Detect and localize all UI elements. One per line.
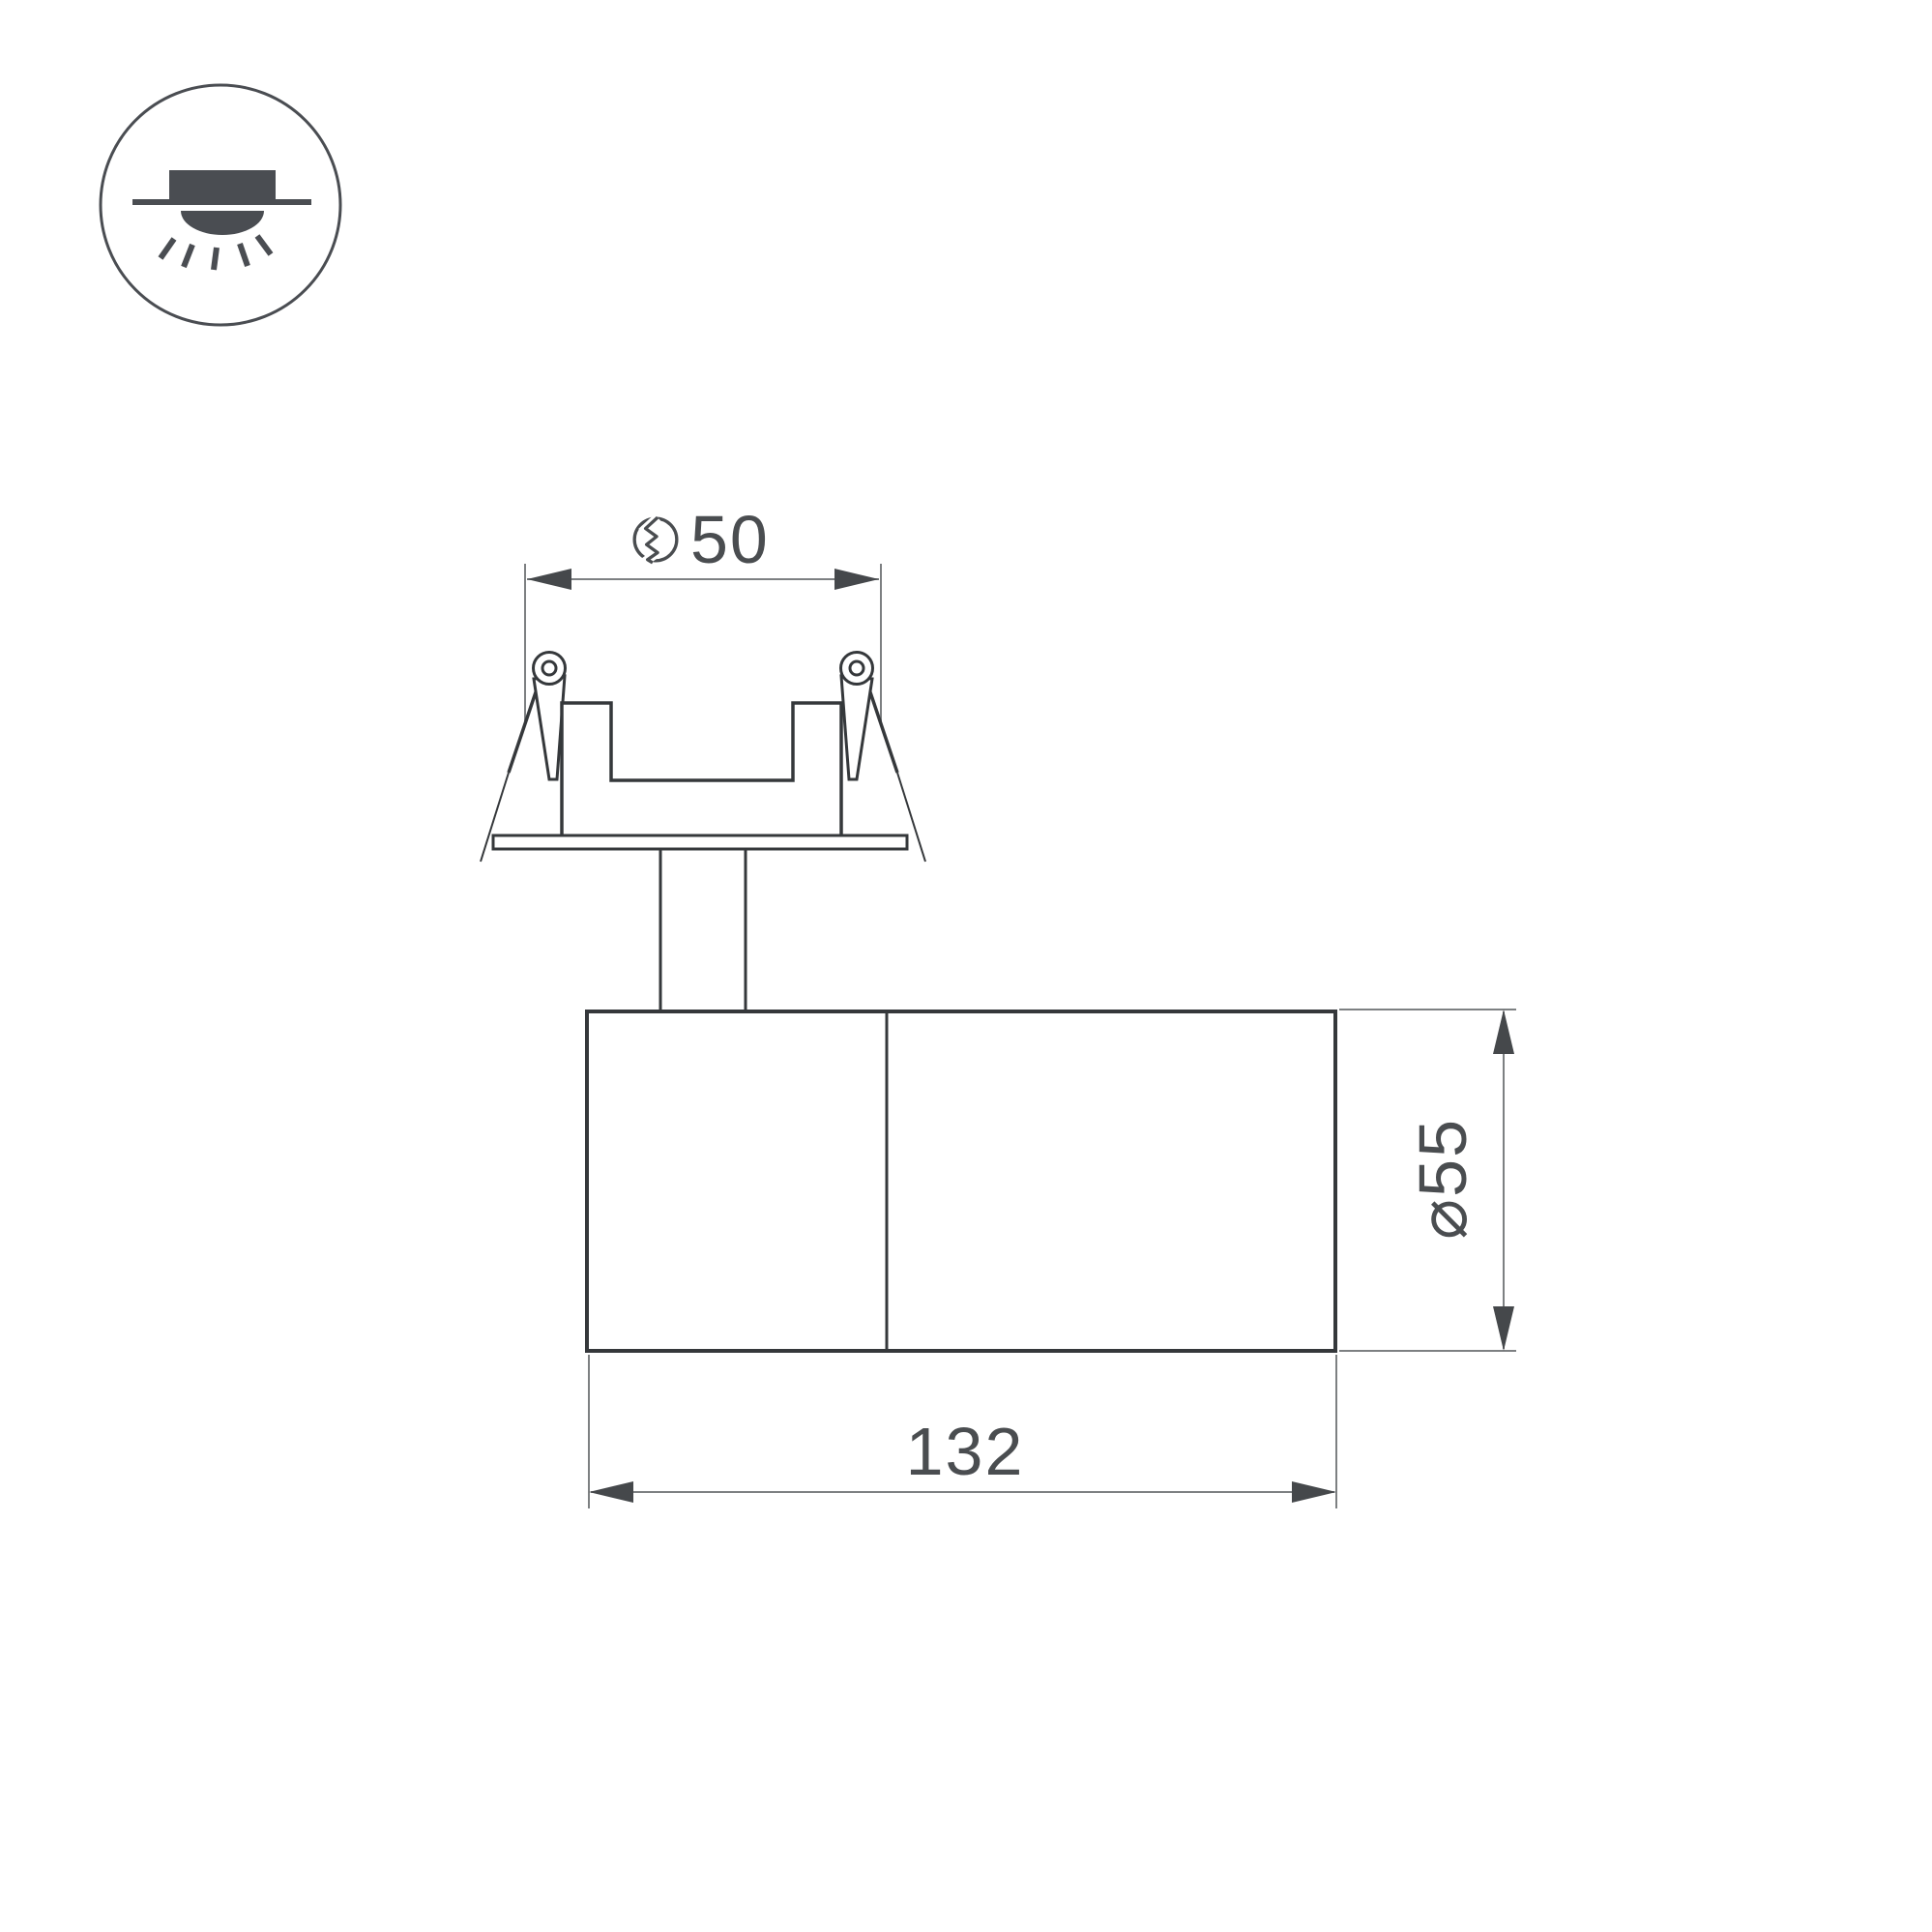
mounting-clip-right — [841, 653, 926, 863]
arrowhead-right-icon — [834, 569, 879, 590]
mounting-clip-left — [481, 653, 566, 863]
arrowhead-left-icon — [589, 1481, 633, 1503]
cutout-hole-icon — [630, 514, 681, 565]
arrowhead-down-icon — [1493, 1306, 1514, 1351]
technical-drawing-canvas: 50 ⌀55 132 — [0, 0, 1932, 1932]
dimension-cutout-50 — [525, 564, 881, 725]
mounting-flange — [493, 835, 907, 849]
stem — [660, 848, 746, 1011]
arrowhead-up-icon — [1493, 1010, 1514, 1054]
dimension-label-cutout: 50 — [630, 505, 770, 574]
dimension-value-cutout: 50 — [690, 506, 770, 573]
arrowhead-right-icon — [1292, 1481, 1336, 1503]
arrowhead-left-icon — [527, 569, 571, 590]
dimension-label-diameter: ⌀55 — [1409, 1118, 1477, 1240]
lamp-body — [587, 1011, 1335, 1351]
recessed-housing — [562, 703, 841, 837]
luminaire-technical-drawing — [0, 0, 1932, 1932]
dimension-label-length: 132 — [906, 1418, 1025, 1485]
